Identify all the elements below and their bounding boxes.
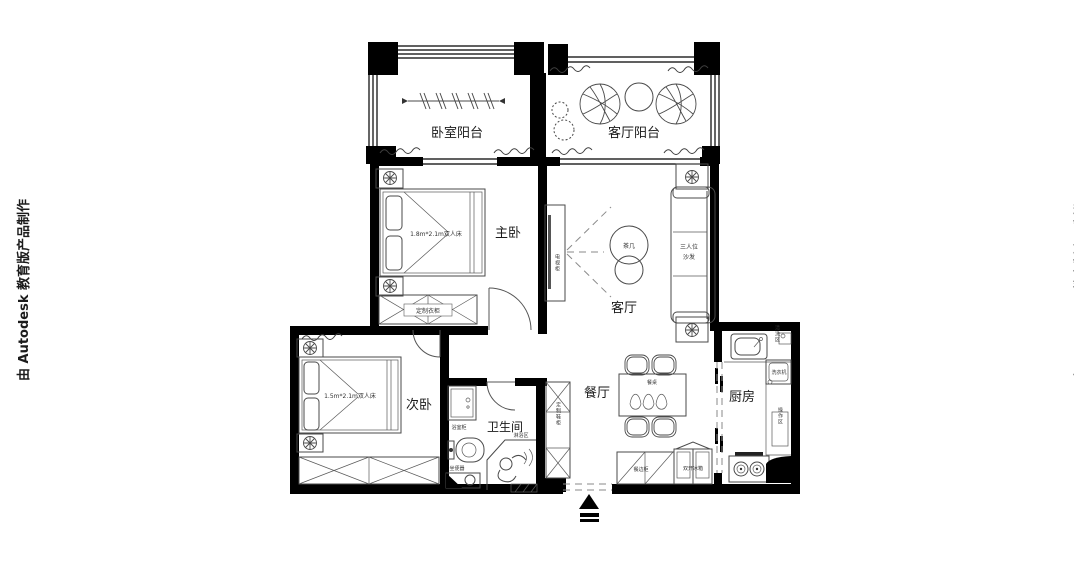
floor-plan-canvas: 由 Autodesk 教育版产品制作 由 Autodesk 教育版产品制作 <box>0 0 1074 576</box>
tv-cabinet <box>545 205 565 301</box>
label-second-bed: 1.5m*2.1m双人床 <box>324 392 376 400</box>
sofa-side-table <box>676 317 708 342</box>
window-wave-icon <box>552 148 592 155</box>
tea-table <box>610 226 648 284</box>
label-wash-zone: 清洗区 <box>774 324 780 343</box>
window-wave-icon <box>494 148 534 155</box>
wall <box>546 157 560 166</box>
shrub-icon <box>552 102 568 118</box>
master-door <box>489 288 531 330</box>
room-label-dining-room: 餐厅 <box>584 385 610 401</box>
plant-icon <box>580 84 620 124</box>
label-tv-cabinet: 电视柜 <box>554 253 560 272</box>
bed2-nightstand <box>297 339 323 357</box>
bathroom-door <box>487 382 515 410</box>
bed2-nightstand <box>297 434 323 452</box>
water-heater-icon <box>779 333 791 344</box>
wall <box>497 157 542 166</box>
label-vanity: 浴室柜 <box>451 424 466 431</box>
drying-rack-icon <box>402 93 505 109</box>
label-master-wardrobe: 定制衣柜 <box>416 307 440 315</box>
label-dining-table: 餐桌 <box>647 379 657 386</box>
room-label-bedroom-balcony: 卧室阳台 <box>431 125 483 141</box>
room-label-master-bedroom: 主卧 <box>495 226 521 241</box>
wall-bath-north <box>440 378 487 386</box>
shoe-cabinet <box>546 382 570 478</box>
wall-bed2-north <box>290 326 413 335</box>
wall-kitchen-west <box>714 331 722 362</box>
stove <box>729 452 769 482</box>
column <box>368 42 398 75</box>
room-label-living-room: 客厅 <box>611 300 637 316</box>
window-wave-icon <box>664 148 704 155</box>
fridge <box>674 442 712 484</box>
tv-sightlines <box>567 207 611 297</box>
label-work-zone: 操作区 <box>777 406 783 425</box>
wall-kitchen-west <box>714 473 722 489</box>
window-west <box>369 75 377 146</box>
label-shower-zone: 淋浴区 <box>513 432 528 439</box>
toilet <box>448 438 484 462</box>
wall-south <box>612 484 800 494</box>
balcony-rail <box>398 46 514 58</box>
room-label-bathroom: 卫生间 <box>487 420 523 434</box>
room-label-kitchen: 厨房 <box>729 389 755 405</box>
wall-kitchen-north <box>710 322 800 331</box>
sofa-side-table <box>676 164 708 189</box>
label-toilet: 坐便器 <box>449 465 464 472</box>
corner-counter <box>766 456 791 483</box>
plant-icon <box>656 84 696 124</box>
wall-bath-east <box>536 378 545 490</box>
wall-kitchen-east <box>791 322 800 492</box>
balcony2-top <box>568 57 694 62</box>
label-shoe-cabinet: 定制鞋柜 <box>555 401 561 426</box>
wall-bed2-west <box>290 326 299 494</box>
wall-master-west <box>370 146 379 335</box>
shower <box>487 440 536 490</box>
column <box>514 42 544 75</box>
label-fridge: 双开冰箱 <box>683 465 703 472</box>
floor-plan-drawing: 卧室阳台 客厅阳台 主卧 客厅 餐厅 次卧 卫生间 厨房 1.8m*2.1m双人… <box>0 0 1074 576</box>
label-sofa-1: 三人位 <box>680 243 698 251</box>
shrub-icon <box>554 120 574 140</box>
label-sideboard: 餐边柜 <box>633 466 648 473</box>
wall-tv <box>538 162 547 334</box>
bed2-wardrobe <box>299 457 439 484</box>
entry-marker-icon <box>579 494 599 522</box>
kitchen-sink <box>731 334 767 359</box>
window-east <box>711 75 719 146</box>
wall-south <box>290 484 563 494</box>
label-sofa-2: 沙发 <box>683 253 695 261</box>
windows <box>302 46 719 341</box>
vanity <box>448 386 476 420</box>
label-washing-machine: 洗衣机 <box>771 369 786 376</box>
label-master-bed: 1.8m*2.1m双人床 <box>410 230 462 238</box>
master-nightstand <box>376 169 403 188</box>
round-stool-icon <box>625 83 653 111</box>
master-nightstand <box>376 277 403 296</box>
entry-opening <box>563 484 612 490</box>
room-label-living-balcony: 客厅阳台 <box>608 125 660 141</box>
label-tea-table: 茶几 <box>623 242 635 250</box>
room-label-second-bedroom: 次卧 <box>406 397 432 413</box>
column <box>694 42 720 75</box>
